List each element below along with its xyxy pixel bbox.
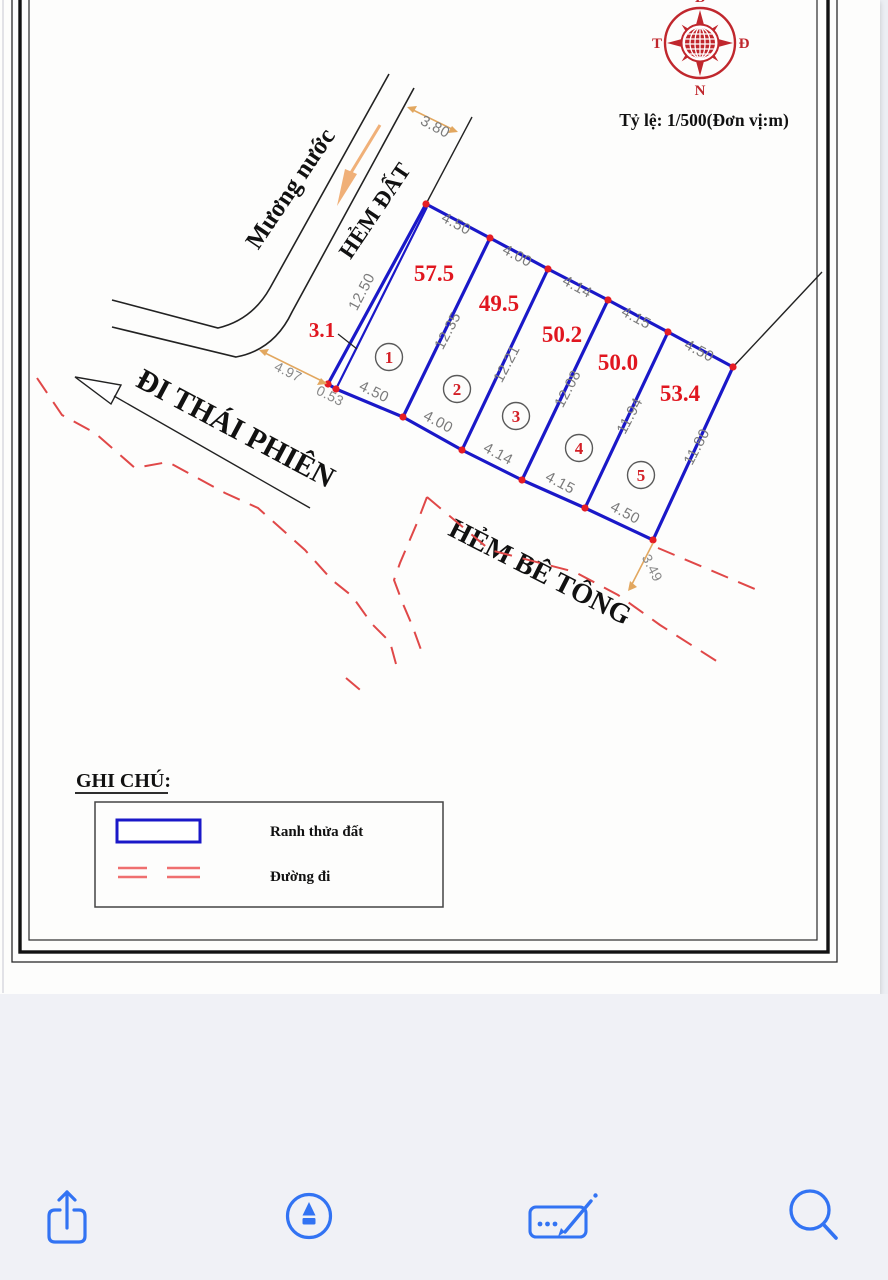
legend-boundary-swatch <box>117 820 200 842</box>
boundary-extension-line <box>733 272 822 367</box>
svg-text:50.0: 50.0 <box>598 350 638 375</box>
svg-text:49.5: 49.5 <box>479 291 519 316</box>
survey-drawing-sheet: B T Đ N Tỷ lệ: 1/500(Đơn vị:m) Mương nướ… <box>0 0 880 994</box>
svg-text:4.50: 4.50 <box>439 209 474 238</box>
legend: GHI CHÚ: Ranh thửa đất Đường đi <box>75 768 443 907</box>
svg-text:11.94: 11.94 <box>613 395 646 437</box>
compass-west-label: T <box>652 36 662 52</box>
svg-text:2: 2 <box>453 380 462 399</box>
fill-sign-button[interactable] <box>521 1189 601 1260</box>
compass-east-label: Đ <box>739 36 750 52</box>
markup-icon <box>281 1188 337 1244</box>
share-button[interactable] <box>37 1186 97 1255</box>
svg-text:4.14: 4.14 <box>481 439 516 468</box>
svg-text:12.35: 12.35 <box>431 309 465 352</box>
compass-south-label: N <box>695 83 706 99</box>
alley-width-dim: 3.80 <box>407 106 458 142</box>
svg-text:4.00: 4.00 <box>421 407 456 436</box>
svg-text:5: 5 <box>637 466 646 485</box>
concrete-alley-label: HẺM BÊ TÔNG <box>444 513 637 632</box>
svg-text:12.21: 12.21 <box>490 342 524 385</box>
search-button[interactable] <box>784 1184 840 1249</box>
svg-text:4.15: 4.15 <box>619 303 654 332</box>
scale-note: Tỷ lệ: 1/500(Đơn vị:m) <box>619 110 789 130</box>
svg-text:3.1: 3.1 <box>309 318 335 342</box>
preview-toolbar <box>0 994 888 1280</box>
svg-text:4.97: 4.97 <box>272 358 305 385</box>
svg-text:57.5: 57.5 <box>414 261 454 286</box>
legend-road-swatch <box>118 868 200 877</box>
side-dims: 12.50 12.35 12.21 12.08 11.94 11.80 <box>345 270 713 467</box>
svg-text:3: 3 <box>512 407 521 426</box>
svg-text:4.50: 4.50 <box>356 378 391 407</box>
svg-text:4.00: 4.00 <box>500 241 535 270</box>
rear-width-dim: 3.49 <box>628 543 666 591</box>
svg-text:11.80: 11.80 <box>680 426 713 468</box>
drawing-frame <box>3 0 837 993</box>
svg-text:4.14: 4.14 <box>560 272 595 301</box>
svg-text:4: 4 <box>575 439 584 458</box>
svg-text:3.80: 3.80 <box>418 112 453 141</box>
front-dims: 4.97 0.53 <box>259 349 346 409</box>
compass-north-label: B <box>695 0 705 6</box>
svg-text:4.50: 4.50 <box>682 336 717 365</box>
svg-text:1: 1 <box>385 348 394 367</box>
share-icon <box>37 1186 97 1250</box>
legend-title: GHI CHÚ: <box>76 768 171 792</box>
bottom-edge-dims: 4.50 4.00 4.14 4.15 4.50 <box>356 378 642 528</box>
search-icon <box>784 1184 840 1244</box>
svg-text:12.08: 12.08 <box>551 367 585 410</box>
thai-phien-label: ĐI THÁI PHIÊN <box>131 363 341 495</box>
svg-text:12.50: 12.50 <box>345 270 379 313</box>
legend-road-label: Đường đi <box>270 869 330 885</box>
cadastral-plan-svg: B T Đ N Tỷ lệ: 1/500(Đơn vị:m) Mương nướ… <box>0 0 880 994</box>
markup-button[interactable] <box>281 1188 337 1249</box>
fill-sign-icon <box>521 1189 601 1255</box>
svg-text:50.2: 50.2 <box>542 322 582 347</box>
svg-text:3.49: 3.49 <box>639 551 666 584</box>
svg-text:4.50: 4.50 <box>608 498 643 527</box>
svg-text:4.15: 4.15 <box>543 468 578 497</box>
svg-text:0.53: 0.53 <box>314 382 347 409</box>
legend-boundary-label: Ranh thửa đất <box>270 824 363 840</box>
compass-rose: B T Đ N <box>652 0 750 99</box>
svg-text:53.4: 53.4 <box>660 381 701 406</box>
